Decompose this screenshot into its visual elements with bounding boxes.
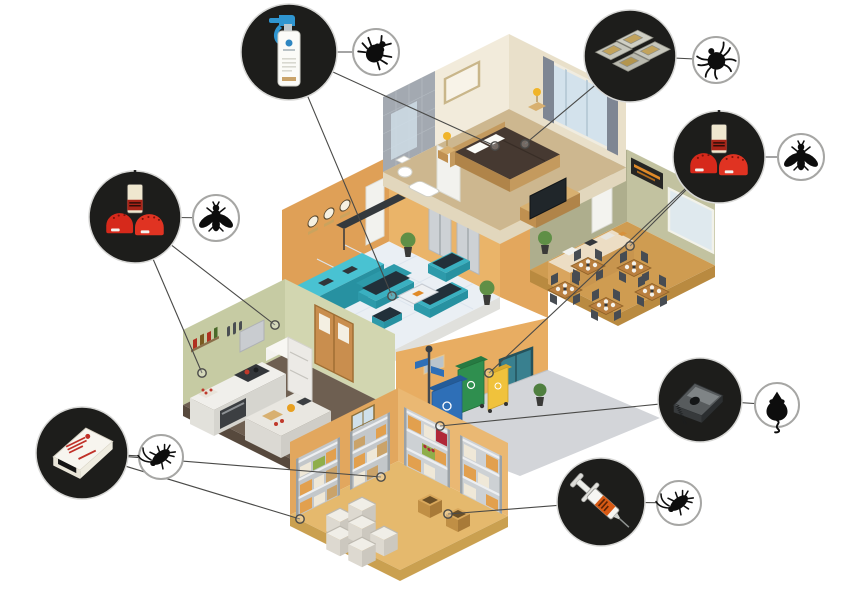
target-marker-mouse-bait-station: [436, 422, 444, 430]
callout-fly-bait-right: [673, 110, 824, 203]
target-marker-bait-station-trays: [521, 140, 529, 148]
bedside-lamp: [533, 88, 541, 96]
target-marker-bedbug-spray: [491, 142, 499, 150]
callout-bait-station-trays: [584, 10, 740, 102]
target-marker-roach-gel-syringe: [444, 510, 452, 518]
callout-roach-glue-trap: [36, 407, 183, 499]
target-marker-fly-bait-left: [198, 369, 206, 377]
target-marker-bedbug-spray: [388, 292, 396, 300]
target-marker-fly-bait-right: [485, 369, 493, 377]
target-marker-roach-glue-trap: [377, 473, 385, 481]
callout-fly-bait-left: [89, 170, 239, 263]
callout-mouse-bait-station: [658, 358, 799, 442]
callout-bedbug-spray: [241, 4, 399, 100]
target-marker-fly-bait-left: [271, 321, 279, 329]
target-line-fly-bait-left: [153, 259, 202, 373]
target-marker-roach-glue-trap: [296, 515, 304, 523]
curtain-left: [543, 56, 554, 123]
callout-roach-gel-syringe: [557, 458, 701, 546]
infographic-stage: [0, 0, 842, 596]
bedside-lamp: [443, 132, 451, 140]
scene-svg: [0, 0, 842, 596]
